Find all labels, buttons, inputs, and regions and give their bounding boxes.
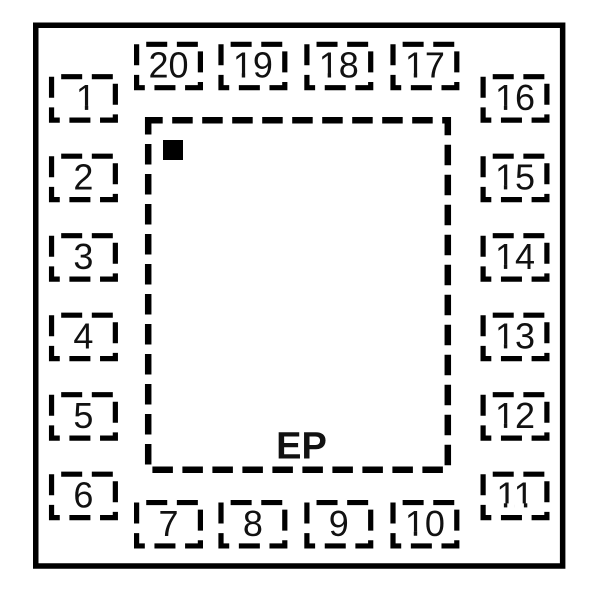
svg-text:10: 10 (405, 503, 445, 544)
svg-text:EP: EP (276, 426, 327, 468)
svg-text:7: 7 (158, 503, 178, 544)
svg-text:2: 2 (73, 156, 93, 197)
svg-text:14: 14 (495, 236, 535, 277)
svg-text:11: 11 (496, 474, 533, 515)
svg-text:9: 9 (329, 503, 349, 544)
svg-text:13: 13 (495, 315, 535, 356)
svg-text:12: 12 (495, 395, 535, 436)
svg-text:1: 1 (76, 77, 96, 118)
svg-text:15: 15 (495, 156, 535, 197)
svg-text:20: 20 (148, 45, 188, 86)
svg-text:6: 6 (73, 474, 93, 515)
svg-text:8: 8 (243, 503, 263, 544)
svg-text:18: 18 (319, 45, 359, 86)
svg-text:16: 16 (495, 77, 535, 118)
svg-text:17: 17 (405, 45, 445, 86)
svg-text:5: 5 (73, 395, 93, 436)
svg-text:3: 3 (73, 236, 93, 277)
svg-text:19: 19 (233, 45, 273, 86)
svg-text:4: 4 (73, 315, 93, 356)
